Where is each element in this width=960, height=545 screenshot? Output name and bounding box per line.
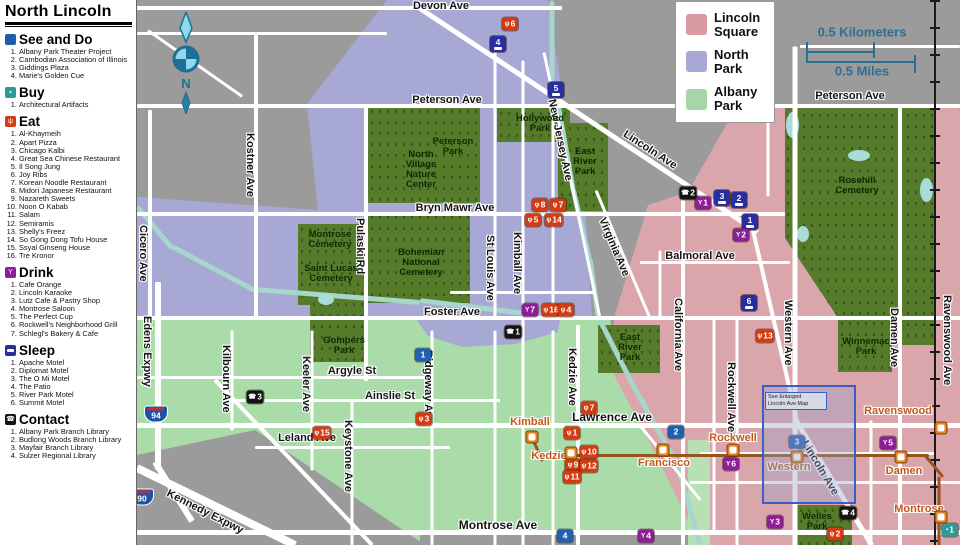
marker-number: 2 [741, 229, 746, 242]
section-title: Buy [19, 85, 45, 100]
pond [848, 150, 870, 161]
bed-icon [7, 349, 14, 352]
marker-drink-4[interactable]: Y4 [638, 530, 654, 543]
street-label: Foster Ave [424, 306, 480, 318]
marker-eat-6[interactable]: ψ6 [502, 18, 518, 31]
station-francisco[interactable] [657, 444, 670, 457]
poi-item: Marie's Golden Cue [19, 72, 132, 80]
marker-number: 2 [674, 426, 679, 439]
contact-icon: ☎ [248, 394, 256, 400]
legend-district-name: North Park [714, 48, 749, 76]
eat-icon: ψ [584, 405, 589, 411]
station-damen[interactable] [895, 451, 908, 464]
see-do-icon [5, 34, 16, 45]
section-header: YDrink [5, 265, 132, 280]
marker-number: 1 [949, 524, 954, 537]
poi-list: Albany Park Theater ProjectCambodian Ass… [5, 48, 132, 80]
street-label: St Louis Ave [484, 235, 496, 301]
section-header: ψEat [5, 114, 132, 129]
marker-number: 6 [511, 18, 516, 31]
bed-icon [735, 203, 743, 206]
marker-eat-10[interactable]: ψ10 [580, 446, 598, 459]
marker-sleep-2[interactable]: 2 [731, 192, 747, 208]
street-label: Kimball Ave [511, 232, 523, 294]
marker-drink-2[interactable]: Y2 [733, 229, 749, 242]
poi-list: Apache MotelDiplomat MotelThe O Mi Motel… [5, 359, 132, 408]
marker-sleep-3[interactable]: 3 [714, 190, 730, 206]
marker-number: 3 [425, 413, 430, 426]
marker-number: 1 [515, 326, 520, 339]
eat-icon: ψ [565, 474, 570, 480]
marker-eat-2[interactable]: ψ2 [827, 528, 843, 541]
section-header: See and Do [5, 32, 132, 47]
eat-icon: ψ [581, 463, 586, 469]
marker-number: 6 [731, 458, 736, 471]
scale-tick [873, 42, 875, 58]
street-label: California Ave [672, 298, 684, 371]
contact-icon: ☎ [5, 414, 16, 425]
station-ravenswood[interactable] [935, 422, 948, 435]
section-title: See and Do [19, 32, 93, 47]
eat-icon: ψ [567, 430, 572, 436]
eat-icon: ψ [568, 462, 573, 468]
legend-district-name: Albany Park [714, 85, 757, 113]
marker-number: 7 [530, 304, 535, 317]
legend-swatch [686, 51, 707, 72]
marker-number: 4 [646, 530, 651, 543]
poi-item: Sulzer Regional Library [19, 452, 132, 460]
section-header: ☎Contact [5, 412, 132, 427]
drink-icon: Y [726, 461, 730, 467]
station-label: Ravenswood [864, 405, 932, 417]
drink-icon: Y [770, 519, 774, 525]
poi-list: Al-KhaymeihApart PizzaChicago KalbiGreat… [5, 130, 132, 260]
marker-see-4[interactable]: 4 [557, 530, 573, 543]
street-label: Argyle St [328, 365, 376, 377]
marker-eat-5[interactable]: ψ5 [525, 214, 541, 227]
sidebar-section-contact: ☎ContactAlbany Park Branch LibraryBudlon… [5, 412, 132, 460]
drink-icon: Y [641, 533, 645, 539]
park-label: Hollywood Park [516, 114, 564, 134]
cicero-ave [148, 110, 152, 320]
marker-number: 13 [763, 330, 772, 343]
street-label: Kostner Ave [244, 133, 256, 197]
bed-icon [494, 47, 502, 50]
pond [797, 226, 809, 242]
street-label: Montrose Ave [459, 518, 537, 532]
marker-sleep-5[interactable]: 5 [548, 82, 564, 98]
marker-number: 1 [703, 197, 708, 210]
street-label: Western Ave [782, 300, 794, 366]
street [659, 250, 662, 318]
scale-tick [914, 55, 916, 73]
station-label: Rockwell [709, 432, 757, 444]
eat-icon: ψ [528, 217, 533, 223]
section-title: Contact [19, 412, 69, 427]
inset-label: See Enlarged Lincoln Ave Map [765, 392, 827, 410]
marker-drink-3[interactable]: Y3 [767, 516, 783, 529]
drink-icon: Y [698, 200, 702, 206]
marker-number: 3 [257, 391, 262, 404]
street-label: Ainslie St [365, 390, 415, 402]
marker-number: 14 [552, 214, 561, 227]
marker-contact-1[interactable]: ☎1 [505, 326, 522, 339]
marker-eat-14[interactable]: ψ14 [545, 214, 563, 227]
marker-number: 4 [567, 304, 572, 317]
eat-icon: ψ [505, 21, 510, 27]
marker-number: 6 [747, 297, 752, 305]
poi-item: Schlegl's Bakery & Cafe [19, 330, 132, 338]
marker-sleep-4[interactable]: 4 [490, 36, 506, 52]
marker-number: 11 [570, 471, 579, 484]
street-label: Ravenswood Ave [941, 295, 953, 385]
bed-icon [746, 225, 754, 228]
contact-icon: ☎ [506, 329, 514, 335]
street-label: Cicero Ave [137, 225, 149, 282]
buy-icon: ▪ [5, 87, 16, 98]
park-label: Rosehill Cemetery [835, 176, 878, 196]
drink-icon: Y [883, 440, 887, 446]
legend-swatch [686, 14, 707, 35]
marker-contact-4[interactable]: ☎4 [840, 507, 857, 520]
marker-drink-5[interactable]: Y5 [880, 437, 896, 450]
park-label: Gompers Park [323, 336, 365, 356]
park-label: Montrose Cemetery [308, 230, 351, 250]
argyle-st [137, 376, 432, 379]
pond [318, 294, 334, 305]
marker-contact-3[interactable]: ☎3 [247, 391, 264, 404]
street-label: Keystone Ave [342, 420, 354, 492]
marker-contact-2[interactable]: ☎2 [680, 187, 697, 200]
station-label: Kedzie [531, 450, 566, 462]
street [494, 330, 497, 545]
eat-icon: ψ [757, 333, 762, 339]
park-label: Bohemian National Cemetery [398, 248, 444, 278]
marker-number: 2 [690, 187, 695, 200]
street [552, 330, 555, 545]
marker-number: 3 [720, 192, 725, 200]
eat-icon: ψ [553, 202, 558, 208]
marker-number: 10 [587, 446, 596, 459]
section-header: Sleep [5, 343, 132, 358]
inset-enlarged-lincoln-ave-box[interactable]: See Enlarged Lincoln Ave Map [762, 385, 856, 504]
drink-icon: Y [5, 267, 16, 278]
marker-see-2[interactable]: 2 [668, 426, 684, 439]
street-label: Devon Ave [413, 0, 469, 12]
marker-eat-11[interactable]: ψ11 [563, 471, 581, 484]
marker-see-1[interactable]: 1 [415, 349, 431, 362]
eat-icon: ψ [546, 217, 551, 223]
marker-number: 4 [496, 38, 501, 46]
street-label: Bryn Mawr Ave [416, 202, 495, 214]
eat-icon: ψ [419, 416, 424, 422]
marker-drink-1[interactable]: Y1 [695, 197, 711, 210]
marker-number: 2 [836, 528, 841, 541]
park-label: Peterson Park [433, 137, 474, 157]
buy-icon: ▪ [946, 527, 948, 533]
park-label: Winnemac Park [842, 337, 889, 357]
marker-number: 15 [320, 427, 329, 440]
street-label: Rockwell Ave [725, 362, 737, 432]
scale-km-label: 0.5 Kilometers [818, 25, 907, 40]
section-title: Sleep [19, 343, 55, 358]
sidebar-section-eat: ψEatAl-KhaymeihApart PizzaChicago KalbiG… [5, 114, 132, 260]
interstate-94-shield: 94 [144, 406, 168, 423]
street-label: Peterson Ave [412, 94, 482, 106]
marker-eat-13[interactable]: ψ13 [756, 330, 774, 343]
legend-row: North Park [686, 48, 774, 76]
marker-number: 8 [541, 199, 546, 212]
eat-icon: ψ [543, 307, 548, 313]
street-label: Keeler Ave [300, 356, 312, 412]
marker-number: 4 [563, 530, 568, 543]
devon-ave [137, 6, 562, 10]
district-legend: Lincoln SquareNorth ParkAlbany Park [675, 1, 775, 123]
station-rockwell[interactable] [727, 444, 740, 457]
marker-number: 1 [748, 216, 753, 224]
poi-list: Cafe OrangeLincoln KaraokeLutz Cafe & Pa… [5, 281, 132, 338]
station-label: Francisco [638, 457, 690, 469]
bed-icon [745, 306, 753, 309]
sidebar-section-buy: ▪BuyArchitectural Artifacts [5, 85, 132, 109]
contact-icon: ☎ [681, 190, 689, 196]
marker-eat-7[interactable]: ψ7 [550, 199, 566, 212]
poi-item: Tre Kronor [19, 252, 132, 260]
marker-eat-7[interactable]: ψ7 [581, 402, 597, 415]
station-kedzie[interactable] [565, 447, 578, 460]
sleep-icon [5, 345, 16, 356]
poi-item: Architectural Artifacts [19, 101, 132, 109]
foster-ave [137, 316, 960, 320]
street-label: Virginia Ave [596, 216, 631, 278]
marker-number: 1 [421, 349, 426, 362]
marker-buy-1[interactable]: ▪1 [942, 524, 958, 537]
inset-label-line2: Lincoln Ave Map [768, 401, 824, 408]
drink-icon: Y [525, 307, 529, 313]
street-label: Edens Expwy [141, 316, 153, 387]
legend-district-name: Lincoln Square [714, 11, 760, 39]
legend-row: Albany Park [686, 85, 774, 113]
street-label: Kedzie Ave [566, 348, 578, 406]
eat-icon: ψ [581, 449, 586, 455]
poi-list: Albany Park Branch LibraryBudlong Woods … [5, 428, 132, 460]
marker-number: 3 [775, 516, 780, 529]
compass-n-label: N [181, 76, 190, 91]
scale-km-bar [806, 51, 875, 53]
drink-icon: Y [736, 232, 740, 238]
section-title: Drink [19, 265, 54, 280]
marker-number: 5 [888, 437, 893, 450]
street-label: Peterson Ave [815, 90, 885, 102]
marker-number: 2 [737, 194, 742, 202]
marker-eat-15[interactable]: ψ15 [313, 427, 331, 440]
street-label: Damen Ave [888, 308, 900, 367]
marker-sleep-6[interactable]: 6 [741, 295, 757, 311]
marker-number: 1 [573, 427, 578, 440]
poi-item: Summit Motel [19, 399, 132, 407]
street-label: Balmoral Ave [665, 250, 735, 262]
marker-eat-1[interactable]: ψ1 [564, 427, 580, 440]
marker-number: 5 [554, 84, 559, 92]
eat-icon: ψ [314, 430, 319, 436]
park-label: Saint Lucas Cemetery [304, 264, 357, 284]
marker-number: 12 [587, 460, 596, 473]
street [713, 318, 716, 532]
legend-swatch [686, 89, 707, 110]
park-label: North Village Nature Center [406, 150, 436, 190]
legend-row: Lincoln Square [686, 11, 774, 39]
marker-eat-12[interactable]: ψ12 [580, 460, 598, 473]
station-label: Damen [886, 465, 923, 477]
eat-icon: ψ [5, 116, 16, 127]
station-montrose[interactable] [935, 511, 948, 524]
station-label: Kimball [510, 416, 550, 428]
page-title: North Lincoln [5, 3, 132, 25]
compass-rose: N [172, 12, 200, 114]
marker-eat-8[interactable]: ψ8 [532, 199, 548, 212]
sidebar-section-drink: YDrinkCafe OrangeLincoln KaraokeLutz Caf… [5, 265, 132, 338]
station-kimball[interactable] [526, 431, 539, 444]
bed-icon [718, 201, 726, 204]
section-title: Eat [19, 114, 40, 129]
sidebar-section-see-do: See and DoAlbany Park Theater ProjectCam… [5, 32, 132, 80]
marker-number: 4 [850, 507, 855, 520]
title-underline [5, 26, 132, 27]
marker-drink-7[interactable]: Y7 [522, 304, 538, 317]
eat-icon: ψ [561, 307, 566, 313]
eat-icon: ψ [535, 202, 540, 208]
street-label: Kilbourn Ave [220, 345, 232, 413]
marker-drink-6[interactable]: Y6 [723, 458, 739, 471]
sidebar: North Lincoln See and DoAlbany Park Thea… [0, 0, 137, 545]
scale-mi-label: 0.5 Miles [835, 64, 889, 79]
park-label: East River Park [618, 333, 642, 363]
marker-eat-4[interactable]: ψ4 [558, 304, 574, 317]
bed-icon [552, 93, 560, 96]
street [870, 420, 873, 545]
poi-list: Architectural Artifacts [5, 101, 132, 109]
marker-eat-3[interactable]: ψ3 [416, 413, 432, 426]
sidebar-section-sleep: SleepApache MotelDiplomat MotelThe O Mi … [5, 343, 132, 408]
marker-number: 5 [534, 214, 539, 227]
edens-expwy [155, 282, 161, 470]
inset-label-line1: See Enlarged [768, 394, 824, 401]
section-header: ▪Buy [5, 85, 132, 100]
marker-number: 7 [590, 402, 595, 415]
eat-icon: ψ [830, 531, 835, 537]
contact-icon: ☎ [841, 510, 849, 516]
marker-number: 7 [559, 199, 564, 212]
park-label: East River Park [573, 147, 597, 177]
